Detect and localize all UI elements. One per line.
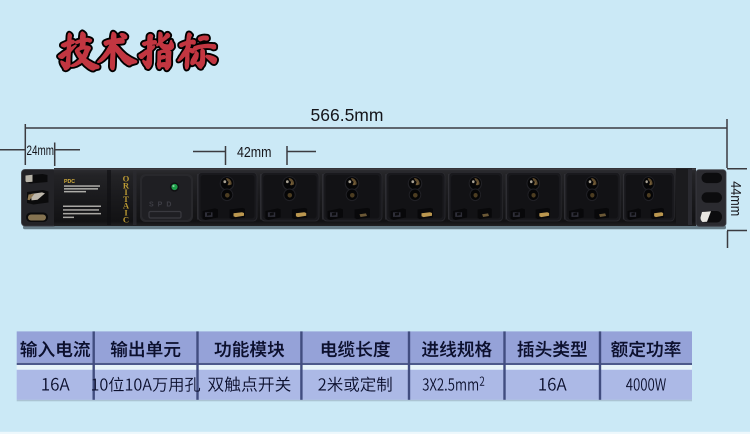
svg-text:SPD: SPD (149, 202, 175, 209)
svg-text:566.5mm: 566.5mm (311, 105, 384, 125)
svg-text:24mm: 24mm (27, 143, 55, 158)
svg-text:PDC: PDC (64, 179, 75, 185)
svg-text:C: C (123, 214, 129, 224)
svg-text:44mm: 44mm (727, 181, 743, 216)
svg-text:42mm: 42mm (237, 144, 272, 161)
